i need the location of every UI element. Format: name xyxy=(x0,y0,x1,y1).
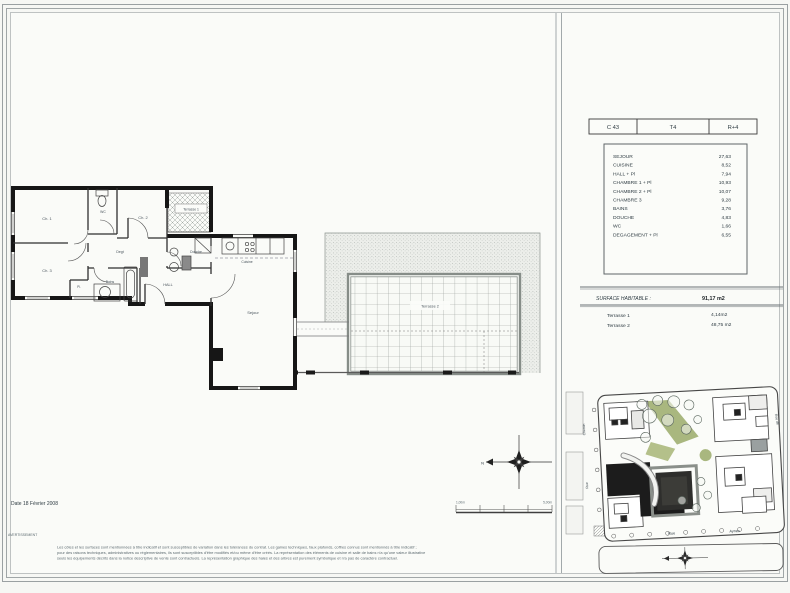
terrasse2-label: Terrasse 2 xyxy=(421,305,439,309)
surface-label: SURFACE HABITABLE : xyxy=(596,296,651,302)
terrasse1-area: Terrasse 1 xyxy=(168,193,211,232)
unit-lot: C 43 xyxy=(607,125,619,131)
row-label: DOUCHE xyxy=(613,215,635,221)
warning-title: AVERTISSEMENT xyxy=(8,533,38,537)
terrasse1-row-label: Terrasse 1 xyxy=(607,313,630,319)
street-rue-left: Rue xyxy=(585,482,589,489)
terrasse1-row-value: 4,14m2 xyxy=(711,312,728,318)
label-sejour: Sejour xyxy=(247,310,259,315)
row-label: CUISINE xyxy=(613,163,634,169)
label-bains: Bains xyxy=(106,280,115,284)
row-label: CHAMBRE 2 + Pl xyxy=(613,189,651,195)
street-rue-bottom: Rue xyxy=(668,531,675,535)
row-value: 3,76 xyxy=(721,206,731,212)
unit-floor: R+4 xyxy=(728,125,740,131)
row-label: WC xyxy=(613,224,622,230)
street-aynes: Aynes xyxy=(729,529,740,534)
scale-left-label: 1,00m xyxy=(456,501,465,505)
row-value: 9,28 xyxy=(721,198,731,204)
label-hall: HALL xyxy=(163,283,173,287)
row-value: 10,93 xyxy=(719,180,732,186)
unit-header-table: C 43 T4 R+4 xyxy=(589,119,757,134)
row-value: 10,07 xyxy=(719,189,732,195)
plan-canvas: Terrasse 2 Terrasse 1 xyxy=(0,0,790,593)
row-label: DEGAGEMENT + Pl xyxy=(613,232,658,238)
row-value: 4,83 xyxy=(721,215,731,221)
row-label: SEJOUR xyxy=(613,154,633,160)
disclaimer-line2: pour des raisons techniques, administrat… xyxy=(57,550,425,555)
label-pl: Pl. xyxy=(77,285,81,289)
row-label: CHAMBRE 3 xyxy=(613,198,642,204)
north-label: N xyxy=(481,461,484,466)
row-label: CHAMBRE 1 + Pl xyxy=(613,180,651,186)
date-label: Date 18 Février 2008 xyxy=(11,501,58,507)
pillar xyxy=(212,348,223,361)
label-ch2: Ch. 2 xyxy=(138,215,148,220)
terrasse1-label: Terrasse 1 xyxy=(183,208,199,212)
row-value: 7,94 xyxy=(721,171,731,177)
label-douche: Douche xyxy=(190,250,202,254)
closet xyxy=(140,257,148,277)
label-degt: Degt xyxy=(116,250,124,254)
label-cuisine: Cuisine xyxy=(241,260,252,264)
row-value: 27,63 xyxy=(719,154,732,160)
unit-type: T4 xyxy=(670,125,678,131)
label-wc: WC xyxy=(100,210,106,214)
street-chemin: Chemin xyxy=(582,423,587,435)
label-ch1: Ch. 1 xyxy=(42,216,52,221)
row-value: 8,52 xyxy=(721,163,731,169)
label-ch3: Ch. 3 xyxy=(42,268,52,273)
row-value: 6,55 xyxy=(721,232,731,238)
row-label: HALL + Pl xyxy=(613,171,635,177)
surface-value: 91,17 m2 xyxy=(702,296,725,302)
disclaimer-line3: seuls les équipements décrits dans la no… xyxy=(57,556,398,561)
floor-plan-sheet: Terrasse 2 Terrasse 1 xyxy=(0,0,790,593)
neighbor-blocks xyxy=(566,392,583,534)
terrasse2-row-value: 48,75 m2 xyxy=(711,322,732,328)
disclaimer-line1: Les côtes et les surfaces sont mentionné… xyxy=(57,545,417,550)
scale-right-label: 5,00m xyxy=(543,501,552,505)
street-strip xyxy=(599,543,783,573)
deck-tiles xyxy=(351,277,517,371)
row-label: BAINS xyxy=(613,206,628,212)
terrasse2-row-label: Terrasse 2 xyxy=(607,323,630,329)
row-value: 1,66 xyxy=(721,224,731,230)
room-areas-table: SEJOUR 27,63 CUISINE 8,52 HALL + Pl 7,94… xyxy=(604,144,747,274)
